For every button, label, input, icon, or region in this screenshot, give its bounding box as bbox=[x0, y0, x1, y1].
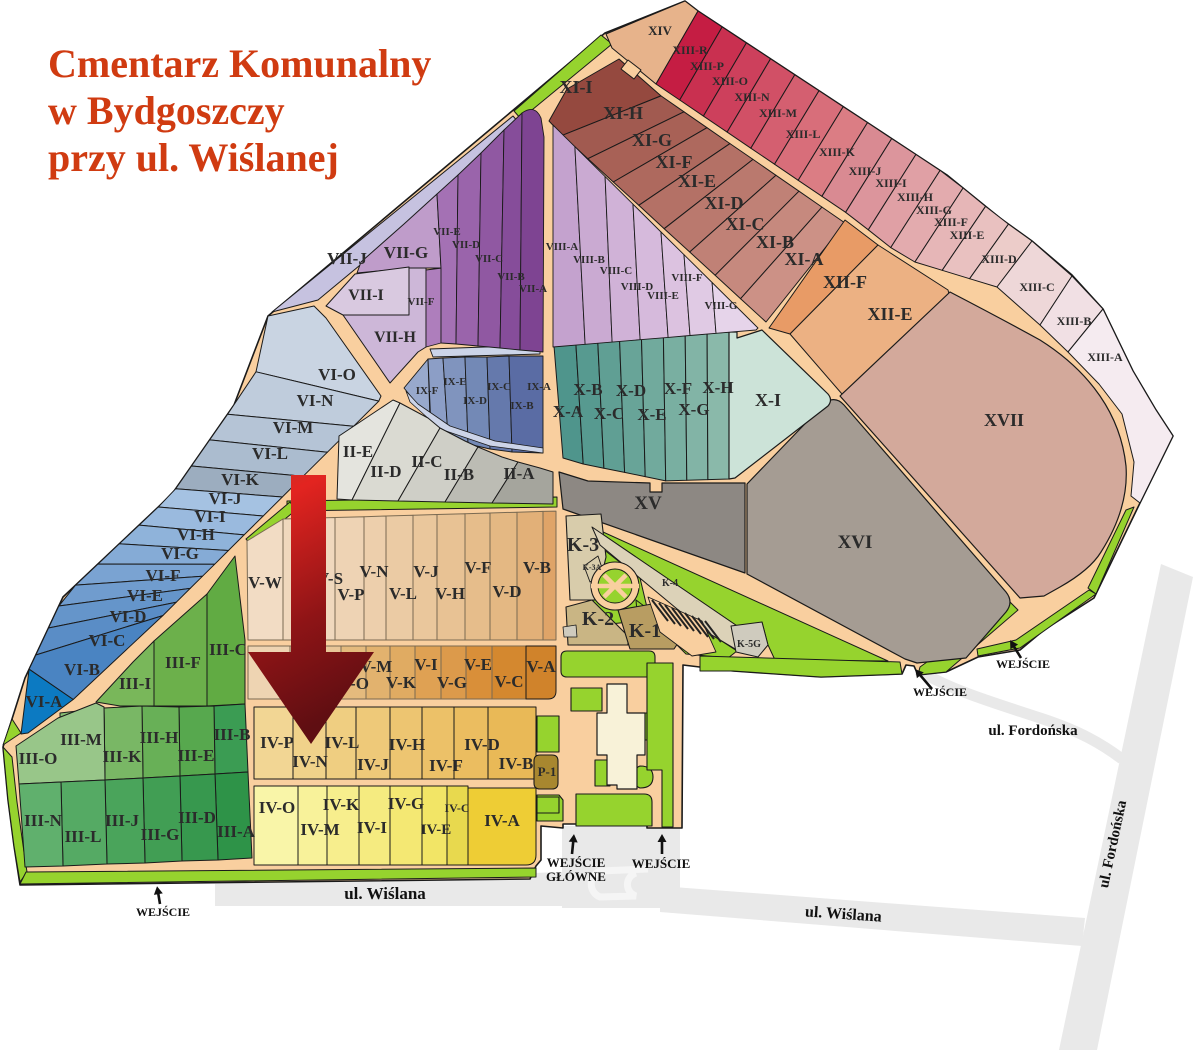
svg-text:XVII: XVII bbox=[984, 410, 1024, 430]
svg-text:XIII-F: XIII-F bbox=[934, 215, 968, 229]
svg-text:II-D: II-D bbox=[370, 462, 401, 481]
svg-text:XIII-M: XIII-M bbox=[759, 106, 797, 120]
svg-text:IX-E: IX-E bbox=[443, 376, 466, 388]
svg-text:VI-O: VI-O bbox=[318, 365, 356, 384]
svg-text:VII-A: VII-A bbox=[519, 283, 547, 295]
svg-text:V-I: V-I bbox=[414, 655, 438, 674]
svg-text:IV-G: IV-G bbox=[388, 794, 425, 813]
svg-text:II-A: II-A bbox=[503, 464, 535, 483]
svg-text:XIII-P: XIII-P bbox=[690, 59, 724, 73]
svg-text:X-D: X-D bbox=[616, 381, 646, 400]
svg-text:IV-E: IV-E bbox=[421, 822, 452, 838]
svg-text:XIII-D: XIII-D bbox=[981, 252, 1017, 266]
svg-text:II-E: II-E bbox=[343, 442, 373, 461]
svg-text:V-D: V-D bbox=[493, 582, 522, 601]
svg-text:III-A: III-A bbox=[217, 822, 256, 841]
svg-text:XI-F: XI-F bbox=[656, 152, 693, 172]
svg-text:VI-D: VI-D bbox=[110, 607, 147, 626]
svg-text:XIII-N: XIII-N bbox=[734, 90, 770, 104]
svg-text:VIII-C: VIII-C bbox=[600, 265, 632, 277]
svg-text:XV: XV bbox=[634, 493, 662, 514]
svg-text:V-E: V-E bbox=[464, 655, 492, 674]
svg-text:V-J: V-J bbox=[413, 562, 439, 581]
svg-text:V-K: V-K bbox=[386, 673, 417, 692]
svg-text:XIII-B: XIII-B bbox=[1057, 314, 1092, 328]
svg-text:III-B: III-B bbox=[214, 725, 251, 744]
svg-text:V-G: V-G bbox=[437, 673, 467, 692]
svg-text:w Bydgoszczy: w Bydgoszczy bbox=[48, 88, 285, 133]
svg-text:XIII-O: XIII-O bbox=[712, 74, 748, 88]
svg-text:VII-J: VII-J bbox=[327, 249, 367, 268]
svg-text:V-P: V-P bbox=[337, 585, 364, 604]
svg-text:X-G: X-G bbox=[678, 400, 709, 419]
svg-text:VI-I: VI-I bbox=[194, 507, 226, 526]
svg-text:V-N: V-N bbox=[360, 562, 390, 581]
svg-text:VII-E: VII-E bbox=[433, 226, 461, 238]
svg-text:XI-H: XI-H bbox=[603, 103, 643, 123]
svg-text:IV-B: IV-B bbox=[499, 754, 534, 773]
svg-text:VII-H: VII-H bbox=[374, 329, 416, 346]
svg-text:IX-A: IX-A bbox=[527, 381, 551, 393]
svg-text:VI-E: VI-E bbox=[127, 586, 163, 605]
svg-text:V-B: V-B bbox=[523, 558, 551, 577]
svg-text:VIII-G: VIII-G bbox=[704, 300, 737, 312]
svg-text:GŁÓWNE: GŁÓWNE bbox=[546, 869, 606, 884]
svg-text:XIII-C: XIII-C bbox=[1019, 280, 1054, 294]
svg-text:VII-I: VII-I bbox=[348, 287, 384, 304]
svg-text:WEJŚCIE: WEJŚCIE bbox=[913, 685, 967, 699]
svg-text:K-3: K-3 bbox=[567, 534, 599, 556]
svg-text:K-5G: K-5G bbox=[737, 639, 761, 650]
svg-text:VI-B: VI-B bbox=[64, 660, 100, 679]
svg-text:IV-A: IV-A bbox=[484, 811, 520, 830]
svg-text:VI-M: VI-M bbox=[273, 418, 314, 437]
svg-text:XIII-E: XIII-E bbox=[950, 228, 985, 242]
svg-text:XI-D: XI-D bbox=[705, 193, 744, 213]
svg-text:X-C: X-C bbox=[594, 404, 624, 423]
svg-text:VII-C: VII-C bbox=[475, 253, 503, 265]
svg-text:X-A: X-A bbox=[553, 402, 584, 421]
svg-text:IV-C: IV-C bbox=[444, 801, 469, 815]
svg-text:XI-A: XI-A bbox=[785, 249, 824, 269]
svg-text:III-E: III-E bbox=[178, 746, 215, 765]
svg-text:V-A: V-A bbox=[527, 657, 557, 676]
svg-text:XVI: XVI bbox=[838, 532, 873, 553]
svg-text:VII-G: VII-G bbox=[384, 243, 428, 262]
svg-text:III-J: III-J bbox=[105, 811, 140, 830]
svg-text:IX-D: IX-D bbox=[463, 395, 487, 407]
svg-text:III-N: III-N bbox=[24, 811, 63, 830]
svg-text:VI-F: VI-F bbox=[146, 566, 181, 585]
svg-text:VIII-E: VIII-E bbox=[647, 290, 679, 302]
svg-text:X-I: X-I bbox=[755, 390, 781, 410]
svg-text:XIII-A: XIII-A bbox=[1087, 350, 1123, 364]
svg-text:XII-F: XII-F bbox=[823, 272, 867, 292]
svg-text:ul. Fordońska: ul. Fordońska bbox=[988, 723, 1078, 739]
svg-text:IV-J: IV-J bbox=[357, 755, 389, 774]
svg-text:V-F: V-F bbox=[464, 558, 491, 577]
svg-text:IV-F: IV-F bbox=[429, 756, 463, 775]
svg-text:XIII-I: XIII-I bbox=[875, 176, 907, 190]
svg-text:ul. Wiślana: ul. Wiślana bbox=[344, 884, 426, 903]
svg-text:XI-G: XI-G bbox=[632, 130, 672, 150]
svg-text:V-L: V-L bbox=[389, 584, 417, 603]
svg-text:III-G: III-G bbox=[141, 825, 180, 844]
svg-text:IX-C: IX-C bbox=[487, 381, 511, 393]
svg-text:III-L: III-L bbox=[65, 827, 102, 846]
svg-text:II-B: II-B bbox=[444, 465, 474, 484]
svg-text:VI-J: VI-J bbox=[208, 489, 242, 508]
svg-text:WEJŚCIE: WEJŚCIE bbox=[632, 856, 691, 871]
svg-text:IV-H: IV-H bbox=[389, 735, 426, 754]
svg-text:IV-P: IV-P bbox=[260, 733, 294, 752]
svg-text:VIII-A: VIII-A bbox=[546, 241, 578, 253]
svg-text:przy ul. Wiślanej: przy ul. Wiślanej bbox=[48, 135, 339, 180]
svg-text:II-C: II-C bbox=[411, 452, 442, 471]
svg-text:V-H: V-H bbox=[435, 584, 465, 603]
svg-text:III-K: III-K bbox=[103, 747, 143, 766]
svg-text:Cmentarz Komunalny: Cmentarz Komunalny bbox=[48, 41, 431, 86]
svg-text:VII-B: VII-B bbox=[497, 271, 525, 283]
svg-text:IV-L: IV-L bbox=[325, 733, 360, 752]
svg-text:XI-I: XI-I bbox=[559, 77, 592, 97]
svg-text:X-F: X-F bbox=[664, 379, 692, 398]
svg-text:VI-H: VI-H bbox=[177, 525, 215, 544]
svg-text:K-1: K-1 bbox=[629, 620, 661, 642]
svg-text:III-O: III-O bbox=[19, 749, 58, 768]
svg-text:IX-B: IX-B bbox=[510, 400, 534, 412]
svg-text:XIII-H: XIII-H bbox=[897, 190, 934, 204]
svg-text:VI-A: VI-A bbox=[26, 692, 64, 711]
svg-text:VI-G: VI-G bbox=[161, 544, 199, 563]
svg-text:IV-M: IV-M bbox=[300, 820, 339, 839]
svg-text:XIII-L: XIII-L bbox=[786, 127, 821, 141]
svg-text:IV-D: IV-D bbox=[464, 735, 500, 754]
svg-text:WEJŚCIE: WEJŚCIE bbox=[136, 905, 190, 919]
svg-text:VI-C: VI-C bbox=[89, 631, 126, 650]
svg-text:VII-D: VII-D bbox=[452, 239, 480, 251]
svg-text:III-M: III-M bbox=[60, 730, 102, 749]
svg-text:III-I: III-I bbox=[119, 674, 152, 693]
svg-text:XIII-K: XIII-K bbox=[819, 145, 856, 159]
svg-text:WEJŚCIE: WEJŚCIE bbox=[547, 855, 606, 870]
svg-text:IV-O: IV-O bbox=[259, 798, 296, 817]
svg-text:III-F: III-F bbox=[165, 653, 201, 672]
svg-text:XIII-R: XIII-R bbox=[672, 43, 708, 57]
svg-text:WEJŚCIE: WEJŚCIE bbox=[996, 657, 1050, 671]
svg-text:VIII-F: VIII-F bbox=[671, 272, 702, 284]
svg-text:K-4: K-4 bbox=[662, 578, 678, 589]
svg-text:K-2: K-2 bbox=[582, 608, 614, 630]
svg-text:IX-F: IX-F bbox=[416, 385, 439, 397]
svg-text:V-W: V-W bbox=[248, 573, 282, 592]
svg-text:III-C: III-C bbox=[209, 640, 247, 659]
svg-text:XII-E: XII-E bbox=[867, 304, 912, 324]
svg-text:VI-N: VI-N bbox=[297, 391, 335, 410]
svg-text:XIV: XIV bbox=[648, 23, 672, 38]
svg-text:X-H: X-H bbox=[702, 378, 733, 397]
svg-text:III-H: III-H bbox=[140, 728, 179, 747]
svg-text:K-3A: K-3A bbox=[583, 563, 602, 572]
svg-text:P-1: P-1 bbox=[538, 764, 557, 779]
svg-text:XI-C: XI-C bbox=[726, 214, 765, 234]
svg-text:XI-E: XI-E bbox=[678, 171, 716, 191]
svg-text:VII-F: VII-F bbox=[408, 296, 435, 308]
svg-text:V-C: V-C bbox=[495, 672, 524, 691]
svg-text:IV-I: IV-I bbox=[357, 818, 387, 837]
svg-text:X-B: X-B bbox=[573, 380, 602, 399]
svg-text:IV-K: IV-K bbox=[323, 795, 360, 814]
svg-text:VI-L: VI-L bbox=[252, 444, 288, 463]
svg-text:III-D: III-D bbox=[178, 808, 216, 827]
svg-text:X-E: X-E bbox=[637, 405, 666, 424]
svg-text:IV-N: IV-N bbox=[292, 752, 328, 771]
svg-text:VI-K: VI-K bbox=[221, 470, 260, 489]
